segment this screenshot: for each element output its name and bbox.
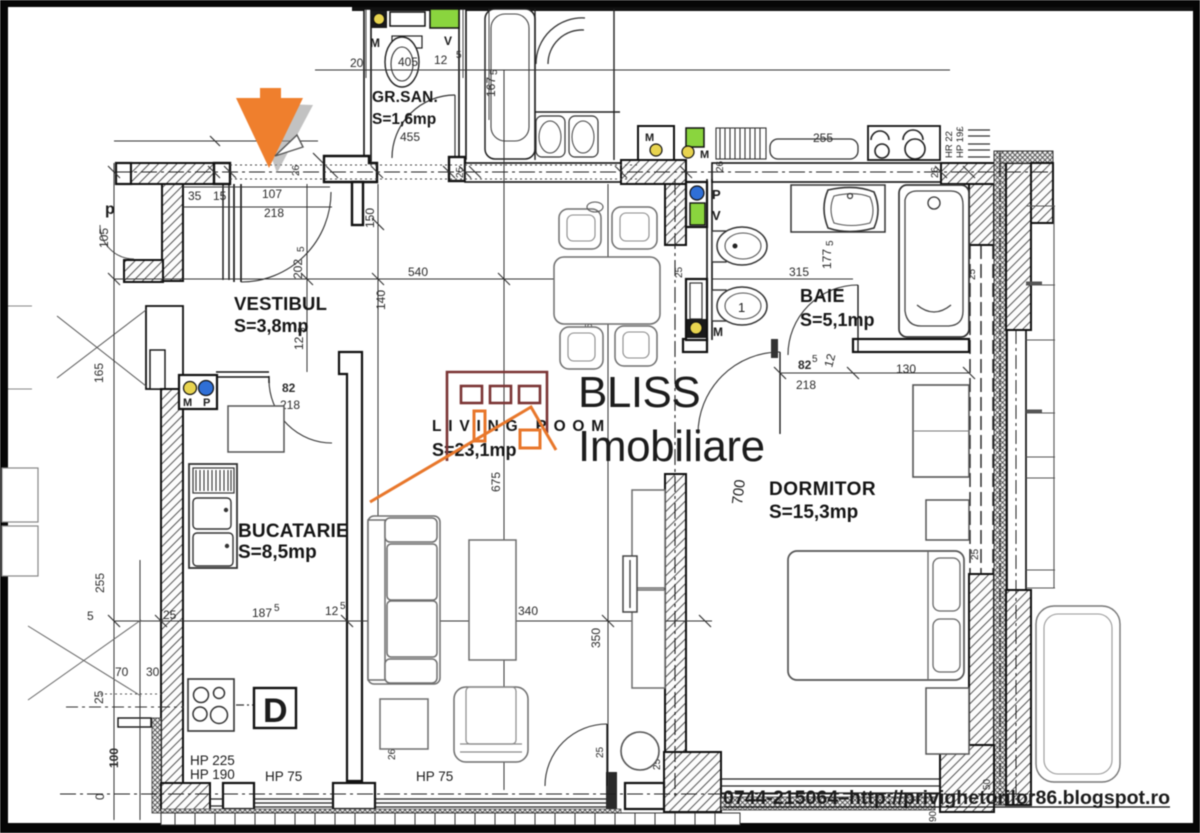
svg-text:25: 25 — [674, 266, 685, 278]
svg-text:M: M — [183, 397, 192, 409]
svg-text:12: 12 — [325, 604, 339, 618]
svg-text:35: 35 — [188, 189, 202, 203]
svg-text:25: 25 — [92, 690, 106, 704]
svg-text:Imobiliare: Imobiliare — [578, 422, 765, 471]
svg-text:VESTIBUL: VESTIBUL — [234, 293, 327, 314]
svg-text:BLISS: BLISS — [578, 368, 700, 417]
svg-text:HP 190: HP 190 — [190, 767, 235, 782]
svg-text:26: 26 — [930, 166, 941, 178]
svg-text:25: 25 — [595, 746, 606, 758]
svg-text:12: 12 — [292, 336, 306, 350]
svg-text:HR 22: HR 22 — [944, 131, 955, 158]
svg-text:S=8,5mp: S=8,5mp — [238, 542, 317, 563]
svg-text:HP 75: HP 75 — [265, 769, 302, 784]
svg-text:M: M — [700, 149, 709, 161]
svg-text:455: 455 — [400, 130, 420, 144]
svg-text:187: 187 — [252, 606, 272, 620]
svg-text:BAIE: BAIE — [800, 286, 845, 306]
svg-text:218: 218 — [796, 378, 816, 392]
svg-text:12: 12 — [434, 53, 448, 67]
svg-text:82: 82 — [798, 358, 812, 372]
svg-text:25: 25 — [970, 548, 981, 560]
svg-text:90: 90 — [928, 810, 939, 822]
svg-text:100: 100 — [107, 748, 121, 768]
svg-text:107: 107 — [262, 187, 282, 201]
svg-text:5: 5 — [812, 354, 818, 365]
svg-text:5: 5 — [340, 601, 346, 612]
svg-text:26: 26 — [291, 164, 302, 176]
svg-text:675: 675 — [489, 472, 503, 492]
svg-text:20: 20 — [350, 56, 364, 70]
svg-text:M: M — [370, 36, 380, 50]
svg-text:HP 75: HP 75 — [416, 769, 453, 784]
svg-text:5: 5 — [274, 603, 280, 614]
svg-text:350: 350 — [589, 628, 603, 648]
svg-text:130: 130 — [896, 362, 916, 376]
svg-text:140: 140 — [374, 290, 388, 310]
svg-text:5: 5 — [489, 69, 500, 75]
svg-text:255: 255 — [813, 131, 833, 145]
svg-text:255: 255 — [93, 573, 107, 593]
svg-text:315: 315 — [789, 265, 809, 279]
svg-text:DORMITOR: DORMITOR — [769, 479, 876, 500]
svg-text:26: 26 — [715, 160, 726, 172]
svg-text:0: 0 — [93, 793, 107, 800]
svg-text:26: 26 — [387, 748, 398, 760]
svg-text:P: P — [712, 187, 721, 202]
svg-text:82: 82 — [282, 381, 296, 395]
svg-text:202: 202 — [291, 259, 305, 279]
svg-text:S=1,6mp: S=1,6mp — [372, 111, 436, 128]
svg-text:150: 150 — [363, 208, 377, 228]
svg-text:25: 25 — [163, 608, 177, 622]
svg-text:M: M — [713, 325, 723, 339]
svg-text:15: 15 — [213, 189, 227, 203]
svg-text:0744-215064–http://privighetor: 0744-215064–http://privighetorilor86.blo… — [723, 787, 1170, 809]
svg-text:S=15,3mp: S=15,3mp — [769, 502, 858, 523]
svg-text:340: 340 — [518, 604, 538, 618]
svg-text:167: 167 — [484, 77, 498, 97]
svg-text:D: D — [263, 692, 288, 730]
svg-text:5: 5 — [825, 240, 836, 246]
svg-text:M: M — [645, 132, 654, 144]
svg-text:5: 5 — [87, 609, 94, 623]
svg-text:V: V — [444, 34, 452, 48]
svg-text:700: 700 — [729, 479, 749, 506]
svg-text:HP 19£: HP 19£ — [955, 126, 966, 158]
svg-text:405: 405 — [398, 55, 418, 69]
svg-text:HP 225: HP 225 — [190, 753, 235, 768]
svg-text:540: 540 — [408, 265, 428, 279]
svg-text:5: 5 — [456, 50, 462, 61]
svg-text:p: p — [105, 201, 115, 218]
svg-text:5: 5 — [296, 246, 307, 252]
svg-text:30: 30 — [146, 665, 160, 679]
svg-text:105: 105 — [97, 228, 111, 248]
svg-text:177: 177 — [820, 249, 834, 269]
svg-text:S=5,1mp: S=5,1mp — [800, 310, 875, 330]
svg-text:70: 70 — [115, 665, 129, 679]
svg-text:S=3,8mp: S=3,8mp — [234, 316, 309, 336]
svg-text:GR.SAN.: GR.SAN. — [372, 89, 438, 106]
svg-text:218: 218 — [264, 206, 284, 220]
svg-text:165: 165 — [92, 363, 106, 383]
svg-text:P: P — [203, 397, 210, 409]
svg-text:V: V — [712, 208, 721, 223]
svg-text:BUCATARIE: BUCATARIE — [238, 521, 349, 542]
svg-text:1: 1 — [738, 300, 745, 315]
